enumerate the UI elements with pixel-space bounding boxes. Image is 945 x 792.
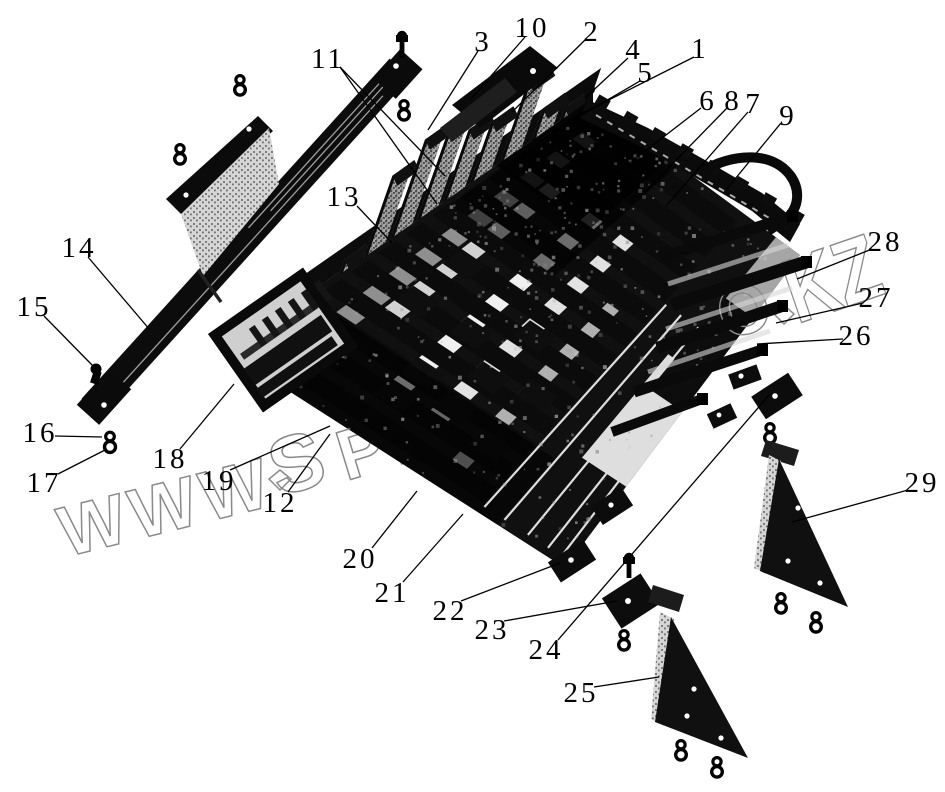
svg-text:14: 14 xyxy=(62,232,97,264)
svg-text:24: 24 xyxy=(529,634,564,666)
svg-text:17: 17 xyxy=(27,467,62,499)
svg-text:10: 10 xyxy=(515,12,550,44)
svg-text:12: 12 xyxy=(263,487,298,519)
svg-text:11: 11 xyxy=(311,43,345,75)
svg-text:9: 9 xyxy=(779,100,797,132)
svg-text:2: 2 xyxy=(583,16,601,48)
svg-text:23: 23 xyxy=(475,614,510,646)
svg-text:16: 16 xyxy=(23,417,58,449)
svg-text:13: 13 xyxy=(327,181,362,213)
svg-text:5: 5 xyxy=(637,57,655,89)
svg-text:27: 27 xyxy=(859,282,894,314)
svg-text:8: 8 xyxy=(724,85,742,117)
svg-text:18: 18 xyxy=(153,443,188,475)
svg-text:21: 21 xyxy=(375,577,410,609)
svg-text:25: 25 xyxy=(564,677,599,709)
svg-text:20: 20 xyxy=(343,543,378,575)
svg-text:1: 1 xyxy=(691,33,709,65)
svg-text:15: 15 xyxy=(17,291,52,323)
svg-text:26: 26 xyxy=(839,320,874,352)
svg-text:29: 29 xyxy=(905,467,940,499)
svg-text:7: 7 xyxy=(745,88,763,120)
svg-text:6: 6 xyxy=(699,85,717,117)
svg-text:28: 28 xyxy=(868,226,903,258)
svg-text:22: 22 xyxy=(433,595,468,627)
svg-text:3: 3 xyxy=(474,26,492,58)
svg-text:19: 19 xyxy=(202,465,237,497)
